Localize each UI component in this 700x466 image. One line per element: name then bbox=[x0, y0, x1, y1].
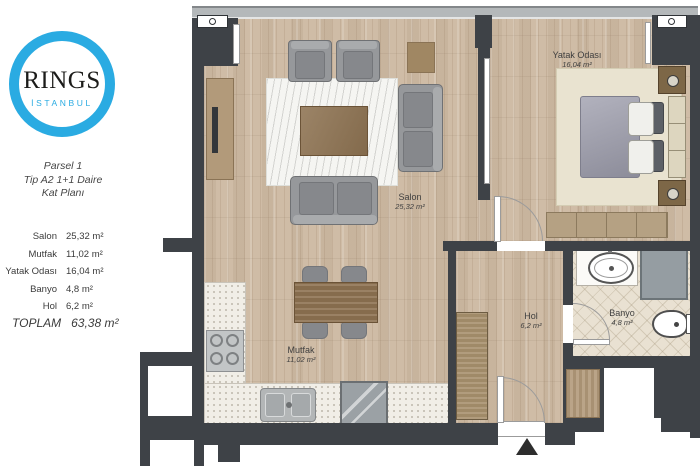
burner bbox=[226, 352, 239, 365]
wall-bottom-left bbox=[192, 423, 498, 445]
total-label: TOPLAM bbox=[12, 316, 61, 330]
room-label-bedroom: Yatak Odası 16,04 m² bbox=[553, 50, 602, 69]
area-row: Yatak Odası 16,04 m² bbox=[0, 266, 140, 277]
lamp-icon bbox=[667, 188, 679, 200]
burner bbox=[226, 334, 239, 347]
total-area: TOPLAM 63,38 m² bbox=[12, 316, 118, 330]
drain-icon bbox=[609, 266, 614, 271]
sofa-back bbox=[293, 215, 377, 224]
kitchen-sink bbox=[260, 388, 316, 422]
armchair bbox=[288, 40, 332, 82]
door-leaf-bedroom bbox=[494, 196, 501, 242]
area-row: Salon 25,32 m² bbox=[0, 231, 140, 242]
radiator bbox=[645, 22, 651, 64]
burner bbox=[210, 352, 223, 365]
dining-chair bbox=[302, 266, 328, 283]
room-name: Salon bbox=[0, 231, 57, 242]
brand-name: RINGS bbox=[23, 67, 101, 95]
pillow bbox=[628, 102, 654, 136]
info-parsel: Parsel 1 bbox=[0, 160, 126, 174]
wall-bathroom-left-upper bbox=[563, 241, 573, 305]
sink-basin bbox=[291, 393, 311, 417]
glass-appliance bbox=[340, 381, 388, 425]
room-name: Hol bbox=[0, 301, 57, 312]
door-leaf-entry bbox=[497, 376, 504, 423]
dining-chair bbox=[341, 322, 367, 339]
nightstand bbox=[658, 66, 686, 94]
flush-icon bbox=[674, 322, 679, 327]
tv-unit bbox=[206, 78, 234, 180]
info-tip: Tip A2 1+1 Daire bbox=[0, 174, 126, 188]
room-label-area: 4,8 m² bbox=[609, 319, 635, 328]
armchair bbox=[336, 40, 380, 82]
dining-chair bbox=[341, 266, 367, 283]
armchair-cushion bbox=[343, 51, 373, 79]
area-row: Mutfak 11,02 m² bbox=[0, 249, 140, 260]
room-area: 11,02 m² bbox=[66, 249, 103, 260]
room-label-kitchen: Mutfak 11,02 m² bbox=[286, 345, 315, 364]
headboard bbox=[668, 96, 686, 178]
entry-threshold bbox=[498, 421, 545, 437]
room-label-area: 25,32 m² bbox=[395, 203, 425, 212]
cooktop bbox=[206, 330, 244, 372]
wall-stub-left bbox=[163, 238, 193, 252]
radiator bbox=[233, 24, 240, 64]
bathroom-sink bbox=[588, 252, 634, 284]
lamp-icon bbox=[667, 75, 679, 87]
sink-basin bbox=[265, 393, 285, 417]
window-band bbox=[192, 6, 698, 19]
sofa-cushion bbox=[299, 182, 334, 215]
door-leaf-bathroom bbox=[573, 339, 610, 345]
room-name: Mutfak bbox=[0, 249, 57, 260]
room-area: 25,32 m² bbox=[66, 231, 104, 242]
area-table: Salon 25,32 m² Mutfak 11,02 m² Yatak Oda… bbox=[0, 231, 140, 319]
room-name: Banyo bbox=[0, 284, 57, 295]
dining-table bbox=[294, 282, 378, 323]
sofa-cushion bbox=[403, 92, 433, 128]
wall-stub-bottom bbox=[218, 445, 240, 462]
sofa-two-seat bbox=[398, 84, 443, 172]
pillow bbox=[628, 140, 654, 174]
room-label-hall: Hol 6,2 m² bbox=[520, 311, 541, 330]
side-table bbox=[407, 42, 435, 73]
room-area: 16,04 m² bbox=[66, 266, 104, 277]
entrance-arrow-icon bbox=[516, 438, 538, 455]
room-name: Yatak Odası bbox=[0, 266, 57, 277]
coffee-table bbox=[300, 106, 368, 156]
room-label-salon: Salon 25,32 m² bbox=[395, 192, 425, 211]
core-opening bbox=[148, 366, 192, 416]
room-label-area: 11,02 m² bbox=[286, 356, 315, 365]
kitchen-counter-bottom bbox=[204, 383, 450, 425]
armchair-back bbox=[339, 41, 377, 49]
armchair-cushion bbox=[295, 51, 325, 79]
brand-subtitle: İSTANBUL bbox=[31, 98, 93, 108]
room-area: 6,2 m² bbox=[66, 301, 93, 312]
area-row: Hol 6,2 m² bbox=[0, 301, 140, 312]
sofa-loveseat bbox=[290, 176, 378, 225]
total-value: 63,38 m² bbox=[71, 316, 118, 330]
vent-dot-icon bbox=[668, 18, 675, 25]
sofa-cushion bbox=[337, 182, 372, 215]
sofa-cushion bbox=[403, 131, 433, 167]
dining-chair bbox=[302, 322, 328, 339]
armchair-back bbox=[291, 41, 329, 49]
tv bbox=[212, 107, 218, 153]
room-label-area: 16,04 m² bbox=[553, 61, 602, 70]
room-area: 4,8 m² bbox=[66, 284, 93, 295]
shaft-notch bbox=[649, 418, 661, 438]
wall-hall-left bbox=[448, 241, 456, 425]
vent-dot-icon bbox=[209, 18, 216, 25]
brand-logo: RINGS İSTANBUL bbox=[9, 31, 115, 137]
area-row: Banyo 4,8 m² bbox=[0, 284, 140, 295]
radiator bbox=[484, 58, 490, 184]
pier-middle bbox=[475, 15, 492, 48]
room-label-area: 6,2 m² bbox=[520, 322, 541, 331]
room-label-bathroom: Banyo 4,8 m² bbox=[609, 308, 635, 327]
shaft-opening bbox=[604, 368, 654, 438]
shaft-closet bbox=[566, 369, 600, 418]
info-katplani: Kat Planı bbox=[0, 187, 126, 201]
core-opening bbox=[150, 440, 194, 466]
nightstand bbox=[658, 180, 686, 206]
faucet-icon bbox=[286, 402, 292, 408]
burner bbox=[210, 334, 223, 347]
wall-bathroom-bottom bbox=[563, 356, 698, 368]
wardrobe bbox=[546, 212, 668, 238]
toilet bbox=[652, 310, 688, 338]
hall-closet bbox=[456, 312, 488, 420]
floorplan-page: RINGS İSTANBUL Parsel 1 Tip A2 1+1 Daire… bbox=[0, 0, 700, 466]
sofa-back bbox=[433, 87, 442, 171]
project-info: Parsel 1 Tip A2 1+1 Daire Kat Planı bbox=[0, 160, 126, 201]
